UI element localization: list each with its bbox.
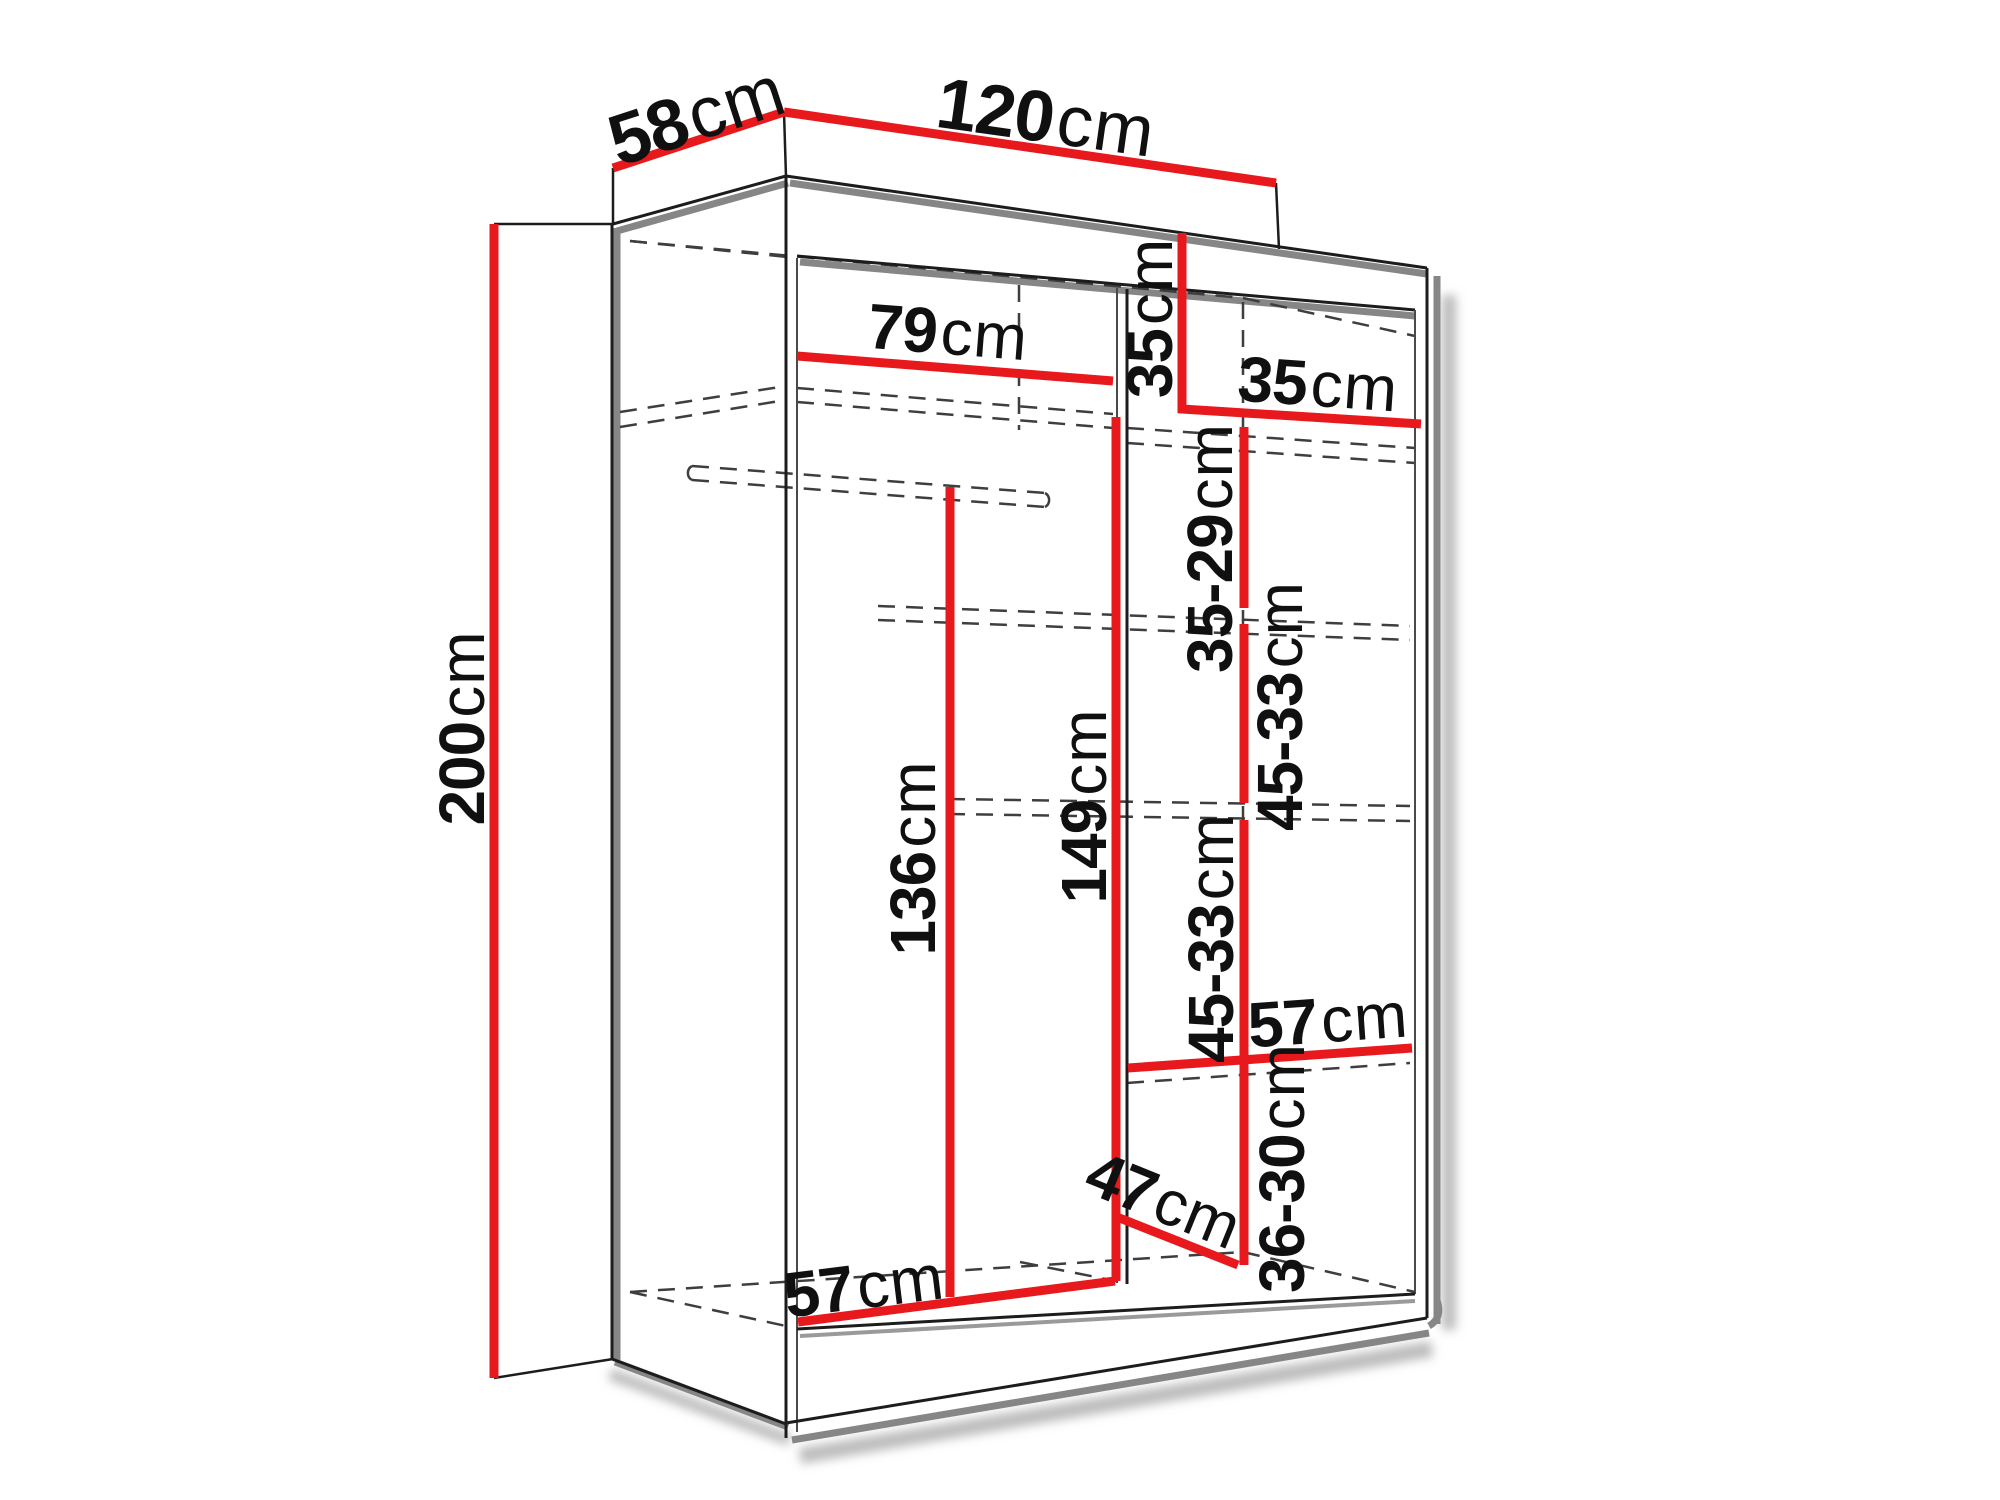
width-right-extension: [1276, 183, 1279, 249]
edge-shade-left-top: [617, 183, 788, 231]
depth-label: 58cm: [599, 50, 795, 182]
right-gap-3-label: 45-33cm: [1175, 813, 1247, 1063]
edge-shade-left-bottom: [615, 1362, 788, 1427]
left-panel-bottom-edge: [612, 1359, 786, 1424]
height-label: 200cm: [426, 630, 498, 825]
ceiling-left-depth-edge: [630, 241, 797, 258]
edge-shade-top-front: [790, 183, 1427, 274]
shelf2-edge-1: [878, 606, 1410, 626]
right-shelf-width-label: 57cm: [1245, 978, 1410, 1061]
hanging-rail-left-cap: [688, 466, 692, 480]
hanging-rail-bottom-edge: [692, 480, 1045, 507]
shelf1-edge-2: [1127, 443, 1415, 463]
shadow-bottom-left: [610, 1374, 790, 1440]
right-section-width-label: 35cm: [1235, 342, 1400, 425]
right-gap-2-label: 45-33cm: [1244, 581, 1316, 831]
shadow-bottom: [800, 1349, 1432, 1456]
top-front-edge: [786, 176, 1427, 268]
left-shelf-edge-2: [797, 402, 1113, 428]
divider-floor-depth-edge: [1020, 1262, 1116, 1281]
top-compartment-height-label: 35cm: [1114, 238, 1186, 399]
left-panel-top-edge: [613, 176, 786, 224]
width-label: 120cm: [932, 63, 1160, 173]
left-shelf-hidden-edge-1: [620, 386, 786, 412]
divider-height-label: 149cm: [1048, 708, 1120, 903]
height-bottom-extension: [494, 1359, 613, 1378]
dimension-labels: 58cm 120cm 200cm 79cm 35cm 35cm 35-29cm …: [426, 50, 1411, 1331]
left-shelf-hidden-edge-2: [620, 400, 786, 427]
shelf3-edge-1: [948, 799, 1410, 806]
left-shelf-edge-1: [797, 388, 1113, 414]
hanging-rail-right-cap: [1045, 493, 1049, 507]
left-bottom-width-label: 57cm: [780, 1240, 948, 1331]
diagram-canvas: 58cm 120cm 200cm 79cm 35cm 35cm 35-29cm …: [0, 0, 2000, 1500]
edge-shade-plinth: [792, 1333, 1429, 1440]
hanging-rail-top-edge: [692, 466, 1045, 493]
right-gap-1-label: 35-29cm: [1174, 423, 1246, 673]
right-gap-4-label: 36-30cm: [1246, 1043, 1318, 1293]
wardrobe-dimension-diagram: 58cm 120cm 200cm 79cm 35cm 35cm 35-29cm …: [0, 0, 2000, 1500]
left-section-width-label: 79cm: [865, 290, 1031, 374]
floor-left-hidden-edge: [630, 1292, 786, 1326]
bottom-shelf-depth-label: 47cm: [1076, 1137, 1252, 1264]
rail-height-label: 136cm: [877, 760, 949, 955]
